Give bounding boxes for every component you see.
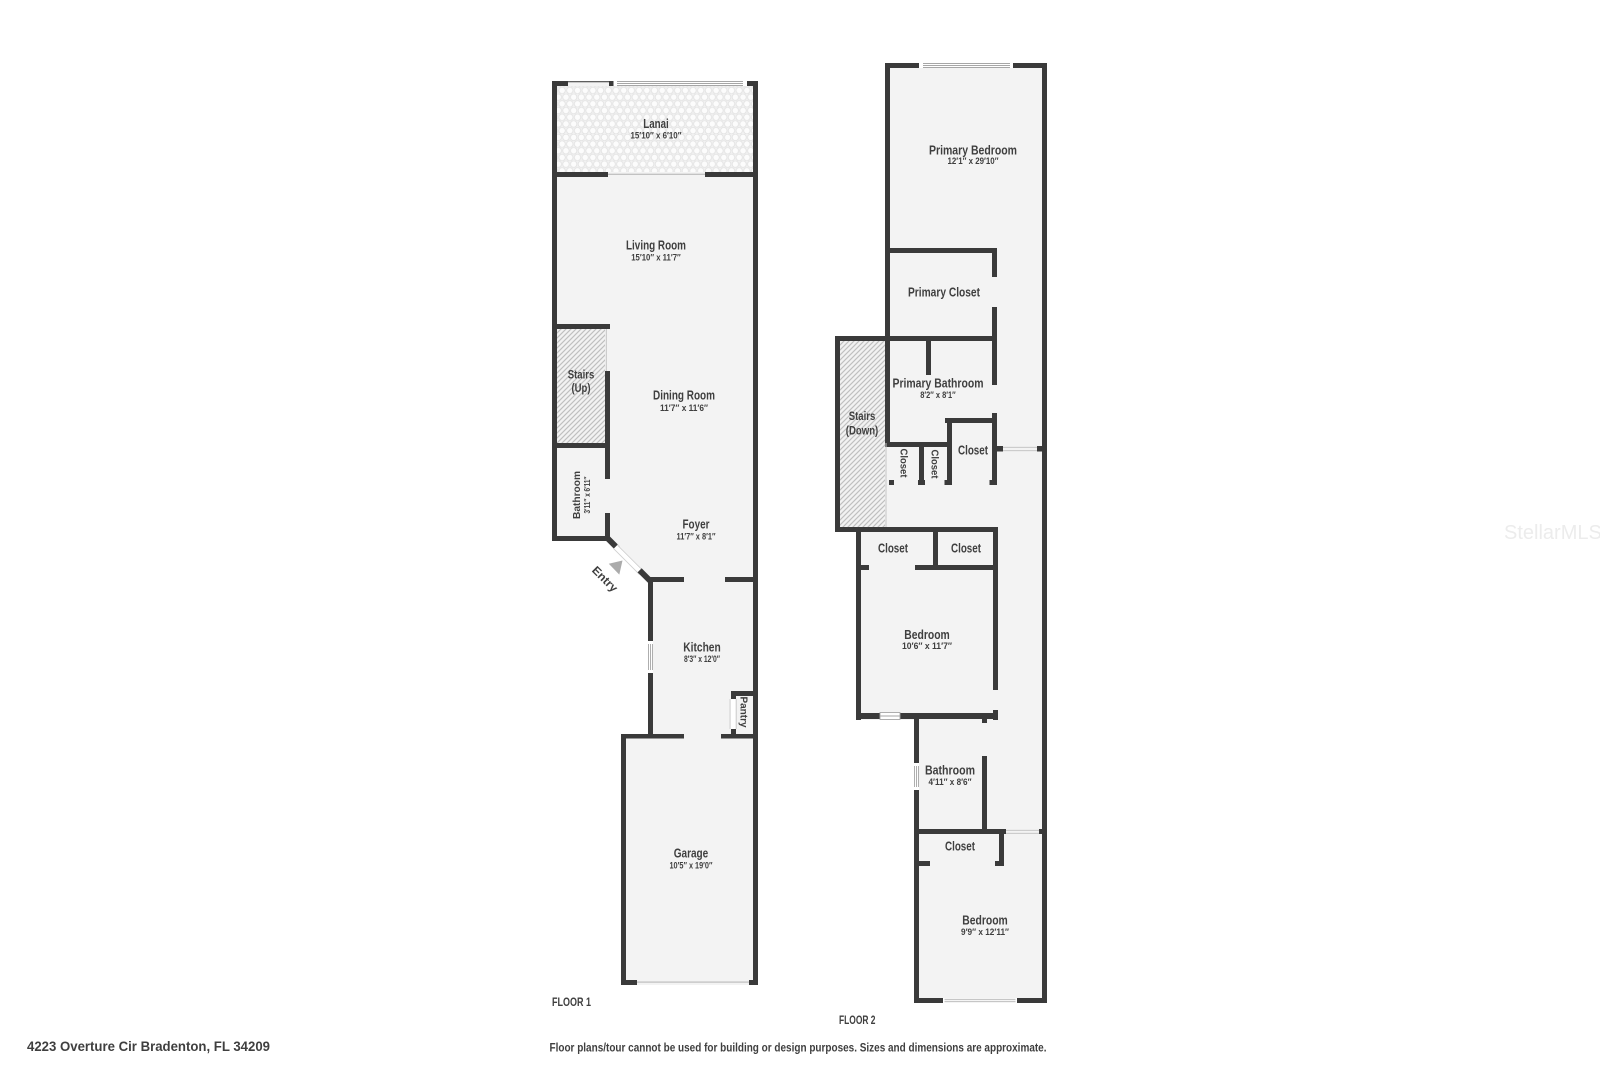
- svg-text:(Down): (Down): [846, 426, 879, 438]
- svg-text:Primary Bathroom: Primary Bathroom: [893, 377, 984, 391]
- svg-text:Bedroom: Bedroom: [904, 628, 950, 642]
- svg-text:Floor plans/tour cannot be use: Floor plans/tour cannot be used for buil…: [550, 1043, 1047, 1055]
- svg-text:Kitchen: Kitchen: [683, 641, 721, 655]
- svg-text:9′9″ x 12′11″: 9′9″ x 12′11″: [961, 927, 1010, 937]
- svg-text:Bathroom: Bathroom: [925, 764, 975, 778]
- svg-text:11′7″ x 8′1″: 11′7″ x 8′1″: [677, 531, 717, 541]
- svg-text:Closet: Closet: [945, 840, 976, 854]
- svg-text:11′7″ x 11′6″: 11′7″ x 11′6″: [660, 403, 709, 413]
- svg-text:FLOOR 2: FLOOR 2: [839, 1015, 876, 1027]
- svg-text:8′3″ x 12′0″: 8′3″ x 12′0″: [684, 654, 721, 664]
- svg-text:Living Room: Living Room: [626, 239, 686, 253]
- svg-text:Dining Room: Dining Room: [653, 389, 715, 403]
- svg-text:Closet: Closet: [898, 449, 910, 478]
- svg-text:Stairs: Stairs: [568, 370, 595, 382]
- svg-text:10′5″ x 19′0″: 10′5″ x 19′0″: [670, 860, 714, 870]
- svg-text:Bedroom: Bedroom: [962, 914, 1008, 928]
- svg-text:Closet: Closet: [951, 542, 982, 556]
- svg-text:8′2″ x 8′1″: 8′2″ x 8′1″: [920, 390, 956, 400]
- svg-text:15′10″ x 11′7″: 15′10″ x 11′7″: [631, 252, 681, 262]
- svg-text:12′1″ x 29′10″: 12′1″ x 29′10″: [948, 156, 1000, 166]
- svg-text:StellarMLS: StellarMLS: [1504, 522, 1600, 544]
- svg-text:Closet: Closet: [878, 542, 909, 556]
- svg-text:(Up): (Up): [572, 383, 591, 395]
- svg-text:4′11″ x 8′6″: 4′11″ x 8′6″: [929, 777, 973, 787]
- svg-text:10′6″ x 11′7″: 10′6″ x 11′7″: [902, 641, 953, 651]
- svg-text:Closet: Closet: [958, 444, 989, 458]
- svg-text:Stairs: Stairs: [849, 411, 876, 423]
- svg-text:Primary Closet: Primary Closet: [908, 286, 981, 300]
- svg-text:Garage: Garage: [674, 847, 709, 861]
- svg-text:Closet: Closet: [929, 450, 941, 479]
- svg-text:Foyer: Foyer: [683, 518, 710, 532]
- svg-text:4223 Overture Cir Bradenton, F: 4223 Overture Cir Bradenton, FL 34209: [27, 1038, 270, 1054]
- svg-text:FLOOR 1: FLOOR 1: [552, 997, 591, 1009]
- svg-text:Pantry: Pantry: [738, 697, 750, 728]
- svg-text:Lanai: Lanai: [643, 117, 669, 131]
- svg-text:15′10″ x 6′10″: 15′10″ x 6′10″: [631, 131, 683, 141]
- svg-text:3′11″ x 6′11″: 3′11″ x 6′11″: [582, 477, 592, 514]
